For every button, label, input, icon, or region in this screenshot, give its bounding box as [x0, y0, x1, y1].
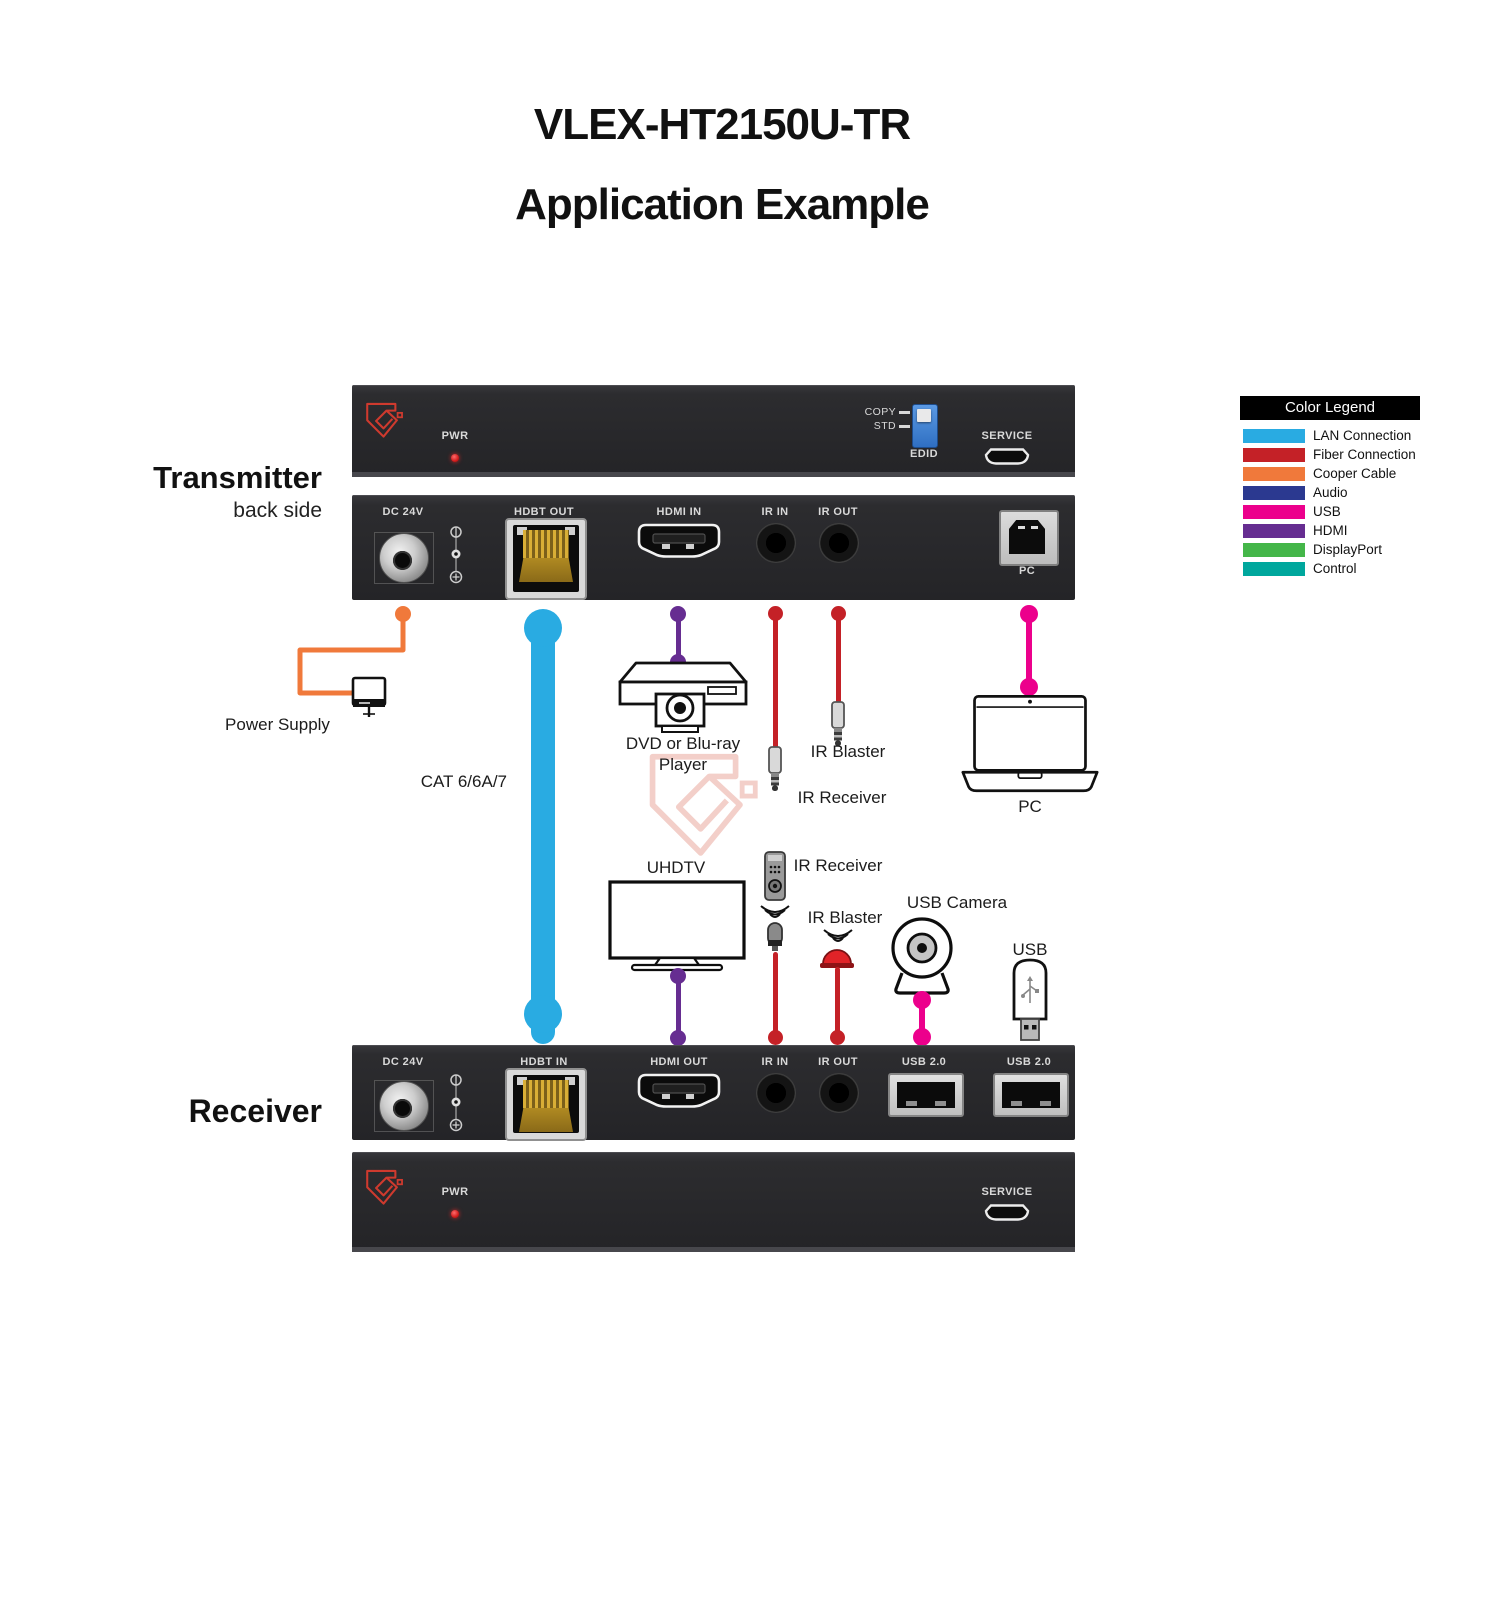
hdmi-swatch: [1243, 524, 1305, 538]
transmitter-front-panel: PWR COPY STD EDID SERVICE: [352, 385, 1075, 477]
audio-swatch: [1243, 486, 1305, 500]
legend-item-control: Control: [1240, 561, 1422, 577]
legend-item-audio: Audio: [1240, 485, 1422, 501]
rx-ir-in-port: [756, 1073, 796, 1113]
pc-device-label: PC: [990, 797, 1070, 817]
color-legend-title: Color Legend: [1240, 396, 1420, 420]
ir-out-line-top: [836, 612, 841, 705]
page-title: VLEX-HT2150U-TR: [272, 100, 1172, 150]
transmitter-back-panel: DC 24V HDBT OUT HDMI IN IR I: [352, 495, 1075, 600]
cat-cable-bottom-dot: [524, 995, 562, 1033]
service-microusb-port: [984, 448, 1030, 465]
ir-in-line-bottom: [773, 952, 778, 1038]
hdmi-in-label: HDMI IN: [639, 506, 719, 518]
ir-out-line-bottom: [835, 967, 840, 1038]
dvd-player-icon: [612, 660, 752, 734]
hdmi-display-dot-bottom: [670, 1030, 686, 1046]
ir-blaster-dome-icon: [817, 944, 857, 969]
usb2-port: [993, 1073, 1069, 1117]
dvd-player-label-line2: Player: [593, 755, 773, 775]
cat-cable-line: [531, 612, 555, 1044]
ir-in-port: [756, 523, 796, 563]
usb1-label: USB 2.0: [884, 1056, 964, 1068]
dvd-player-label-line1: DVD or Blu-ray: [593, 734, 773, 754]
uhdtv-label: UHDTV: [616, 858, 736, 878]
brand-logo-icon: [362, 401, 408, 441]
copy-tick: [899, 411, 910, 414]
copper-swatch: [1243, 467, 1305, 481]
hdmi-source-dot-top: [670, 606, 686, 622]
dc-power-port: [379, 533, 429, 583]
ir-blaster-top-label: IR Blaster: [768, 742, 928, 762]
receiver-front-panel: PWR SERVICE: [352, 1152, 1075, 1252]
lan-swatch: [1243, 429, 1305, 443]
hdmi-out-label: HDMI OUT: [639, 1056, 719, 1068]
service-label: SERVICE: [967, 430, 1047, 442]
edid-switch-knob: [917, 409, 931, 422]
hdbt-out-port: [505, 518, 587, 600]
hdmi-out-port: [637, 1073, 721, 1113]
pwr-label: PWR: [415, 430, 495, 442]
ir-receiver-top-label: IR Receiver: [762, 788, 922, 808]
polarity-icon: [449, 525, 463, 585]
displayport-swatch: [1243, 543, 1305, 557]
rx-power-led: [451, 1210, 459, 1218]
receiver-label: Receiver: [90, 1093, 322, 1130]
pc-usb-dot-top: [1020, 605, 1038, 623]
ir-out-port: [819, 523, 859, 563]
ir-out-dot-bottom: [830, 1030, 845, 1045]
usb-drive-icon: [1010, 957, 1050, 1045]
usb-swatch: [1243, 505, 1305, 519]
ir-out-label: IR OUT: [798, 506, 878, 518]
ir-in-dot-top: [768, 606, 783, 621]
camera-usb-dot-top: [913, 991, 931, 1009]
laptop-icon: [957, 694, 1103, 796]
usb1-port: [888, 1073, 964, 1117]
hdmi-in-port: [637, 523, 721, 563]
ir-out-dot-top: [831, 606, 846, 621]
camera-usb-dot-bottom: [913, 1028, 931, 1046]
legend-item-displayport: DisplayPort: [1240, 542, 1422, 558]
remote-icon: [763, 850, 787, 902]
legend-item-copper: Cooper Cable: [1240, 466, 1422, 482]
std-tick: [899, 425, 910, 428]
ir-blaster-plug-icon: [829, 701, 847, 747]
cat-cable-top-dot: [524, 609, 562, 647]
dc-24v-label: DC 24V: [363, 506, 443, 518]
pc-port-label: PC: [1007, 565, 1047, 577]
cat-cable-label: CAT 6/6A/7: [383, 772, 507, 792]
hdbt-out-label: HDBT OUT: [504, 506, 584, 518]
power-led: [451, 454, 459, 462]
ir-in-dot-bottom: [768, 1030, 783, 1045]
usb-camera-label: USB Camera: [877, 893, 1037, 913]
ir-in-line-top: [773, 612, 778, 750]
pc-usb-b-port: [999, 510, 1059, 566]
transmitter-label: Transmitter: [90, 460, 322, 496]
usb2-label: USB 2.0: [989, 1056, 1069, 1068]
legend-item-hdmi: HDMI: [1240, 523, 1422, 539]
hdbt-in-label: HDBT IN: [504, 1056, 584, 1068]
usb-camera-icon: [886, 914, 958, 996]
rx-dc-power-port: [379, 1081, 429, 1131]
rx-dc-24v-label: DC 24V: [363, 1056, 443, 1068]
rx-panel-bottom-edge: [352, 1247, 1075, 1252]
power-supply-label: Power Supply: [185, 715, 370, 735]
rx-service-microusb-port: [984, 1204, 1030, 1221]
rx-polarity-icon: [449, 1073, 463, 1133]
rx-ir-out-port: [819, 1073, 859, 1113]
edid-copy-label: COPY: [816, 406, 896, 418]
edid-std-label: STD: [816, 420, 896, 432]
uhdtv-icon: [608, 880, 748, 973]
page-subtitle: Application Example: [272, 180, 1172, 230]
edid-switch: [912, 404, 938, 448]
transmitter-sublabel: back side: [90, 499, 322, 523]
legend-item-usb: USB: [1240, 504, 1422, 520]
application-diagram: VLEX-HT2150U-TR Application Example Tran…: [0, 0, 1500, 1618]
control-swatch: [1243, 562, 1305, 576]
hdbt-in-port: [505, 1068, 587, 1141]
rx-ir-out-label: IR OUT: [798, 1056, 878, 1068]
legend-item-fiber: Fiber Connection: [1240, 447, 1422, 463]
rx-pwr-label: PWR: [415, 1186, 495, 1198]
rx-brand-logo-icon: [362, 1168, 408, 1208]
legend-item-lan: LAN Connection: [1240, 428, 1422, 444]
ir-blaster-waves-icon: [820, 928, 856, 945]
receiver-back-panel: DC 24V HDBT IN HDMI OUT IR I: [352, 1045, 1075, 1140]
rx-service-label: SERVICE: [967, 1186, 1047, 1198]
pc-usb-line: [1026, 612, 1032, 688]
panel-bottom-edge: [352, 472, 1075, 477]
hdmi-display-dot-top: [670, 968, 686, 984]
fiber-swatch: [1243, 448, 1305, 462]
edid-label: EDID: [894, 448, 954, 460]
